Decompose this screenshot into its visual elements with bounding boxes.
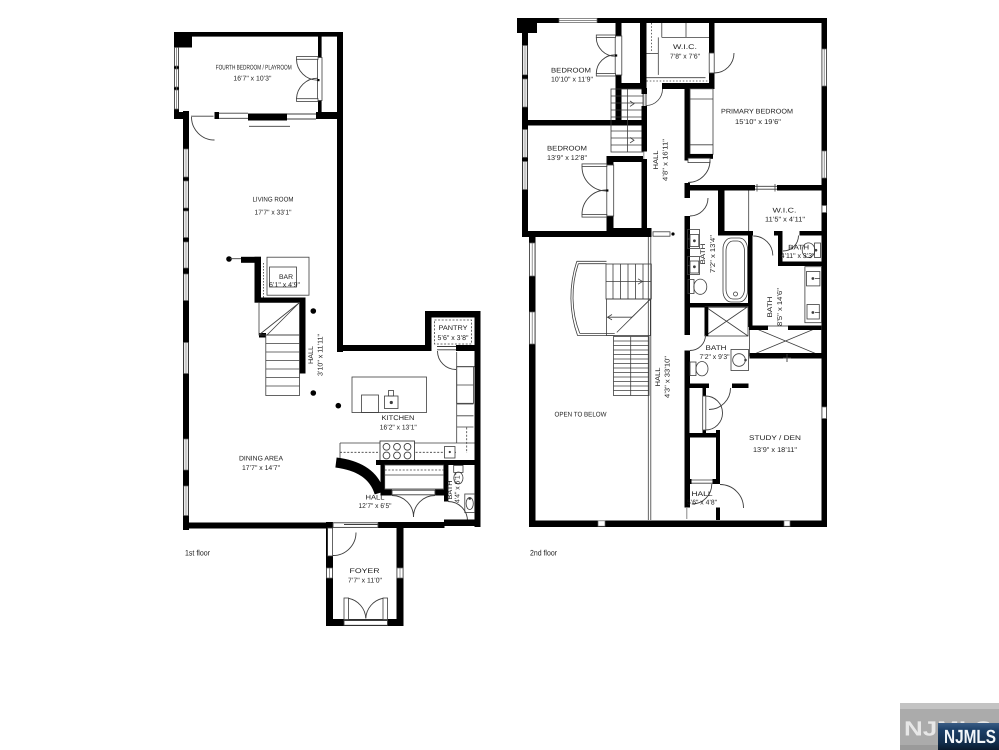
- svg-text:HALL: HALL: [366, 495, 385, 502]
- svg-text:FOURTH BEDROOM / PLAYROOM: FOURTH BEDROOM / PLAYROOM: [216, 65, 292, 72]
- svg-text:PANTRY: PANTRY: [439, 325, 468, 332]
- svg-text:BATH: BATH: [706, 345, 727, 352]
- svg-text:HALL: HALL: [653, 150, 660, 169]
- svg-text:3’10" x 11’11": 3’10" x 11’11": [318, 333, 325, 376]
- svg-text:HALL: HALL: [655, 367, 662, 386]
- svg-text:7’7" x 11’0": 7’7" x 11’0": [348, 578, 383, 585]
- svg-text:BATH: BATH: [788, 245, 809, 252]
- svg-text:4’4" x 6’1": 4’4" x 6’1": [455, 473, 462, 503]
- svg-text:BEDROOM: BEDROOM: [551, 68, 591, 75]
- svg-text:10’10" x 11’9": 10’10" x 11’9": [551, 77, 594, 84]
- svg-text:NJMLS: NJMLS: [944, 727, 996, 748]
- svg-text:16’2" x 13’1": 16’2" x 13’1": [380, 425, 417, 432]
- svg-text:HALL: HALL: [692, 491, 713, 498]
- svg-text:W.I.C.: W.I.C.: [673, 44, 697, 51]
- svg-text:17’7" x 14’7": 17’7" x 14’7": [242, 465, 281, 472]
- svg-text:OPEN TO BELOW: OPEN TO BELOW: [555, 412, 608, 419]
- svg-text:8’5" x 14’6": 8’5" x 14’6": [777, 287, 784, 326]
- svg-text:DINING AREA: DINING AREA: [239, 456, 283, 463]
- svg-text:4’3" x 33’10": 4’3" x 33’10": [665, 355, 672, 398]
- svg-text:4’8" x 16’11": 4’8" x 16’11": [663, 138, 670, 181]
- svg-text:13’9" x 12’8": 13’9" x 12’8": [547, 155, 588, 162]
- svg-text:11’5" x 4’11": 11’5" x 4’11": [765, 217, 806, 224]
- svg-text:4’11" x 3’3": 4’11" x 3’3": [781, 253, 816, 260]
- svg-text:5’6" x 3’8": 5’6" x 3’8": [438, 335, 470, 342]
- svg-text:5’6" x 4’8": 5’6" x 4’8": [687, 500, 717, 507]
- svg-text:1st floor: 1st floor: [185, 549, 210, 558]
- svg-text:BATH: BATH: [767, 296, 774, 317]
- svg-text:17’7" x 33’1": 17’7" x 33’1": [255, 210, 292, 217]
- svg-text:BEDROOM: BEDROOM: [547, 146, 587, 153]
- svg-text:13’9" x 18’11": 13’9" x 18’11": [753, 447, 798, 454]
- svg-text:7’2" x 13’4": 7’2" x 13’4": [710, 234, 717, 273]
- svg-text:6’1" x 4’9": 6’1" x 4’9": [269, 282, 301, 289]
- svg-text:FOYER: FOYER: [350, 568, 380, 575]
- svg-text:LIVING ROOM: LIVING ROOM: [253, 197, 294, 204]
- svg-text:2nd floor: 2nd floor: [530, 549, 557, 558]
- svg-text:7’2" x 9’3": 7’2" x 9’3": [700, 354, 730, 361]
- svg-text:HALL: HALL: [308, 346, 315, 364]
- svg-text:KITCHEN: KITCHEN: [382, 415, 415, 422]
- svg-text:16’7" x 10’3": 16’7" x 10’3": [233, 76, 272, 83]
- svg-text:7’8" x 7’6": 7’8" x 7’6": [670, 54, 700, 61]
- svg-text:BAR: BAR: [279, 274, 293, 281]
- svg-text:12’7" x 6’5": 12’7" x 6’5": [359, 503, 392, 510]
- svg-text:PRIMARY BEDROOM: PRIMARY BEDROOM: [721, 109, 793, 116]
- svg-text:STUDY / DEN: STUDY / DEN: [749, 435, 801, 442]
- svg-text:15’10" x 19’6": 15’10" x 19’6": [735, 119, 782, 126]
- svg-text:BATH: BATH: [447, 480, 454, 499]
- svg-text:BATH: BATH: [700, 243, 707, 264]
- svg-text:W.I.C.: W.I.C.: [773, 208, 797, 215]
